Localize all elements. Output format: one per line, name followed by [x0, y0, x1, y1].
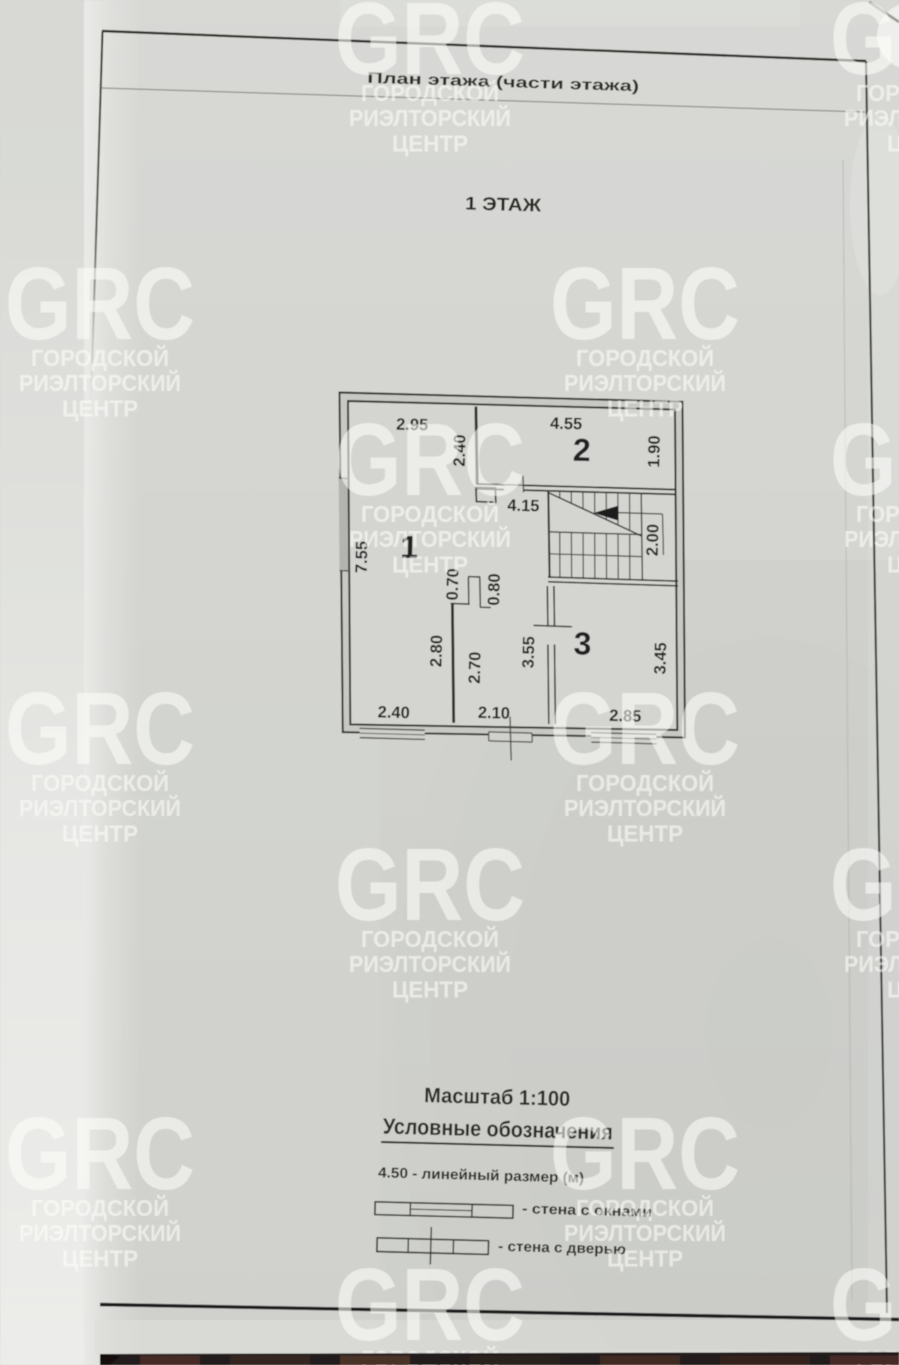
svg-text:1 ЭТАЖ: 1 ЭТАЖ [465, 193, 542, 216]
svg-text:4.55: 4.55 [550, 415, 583, 434]
svg-text:1.90: 1.90 [645, 435, 664, 468]
svg-text:2.80: 2.80 [427, 635, 446, 668]
svg-text:2.70: 2.70 [466, 651, 485, 684]
svg-text:2: 2 [572, 432, 591, 468]
svg-text:3.45: 3.45 [651, 642, 670, 675]
svg-text:2.00: 2.00 [644, 524, 663, 557]
svg-text:Масштаб 1:100: Масштаб 1:100 [424, 1084, 571, 1111]
svg-text:2.40: 2.40 [377, 703, 410, 722]
svg-text:2.10: 2.10 [478, 704, 511, 723]
svg-text:3: 3 [573, 625, 592, 661]
svg-text:3.55: 3.55 [519, 636, 538, 669]
svg-text:0.80: 0.80 [485, 573, 504, 606]
